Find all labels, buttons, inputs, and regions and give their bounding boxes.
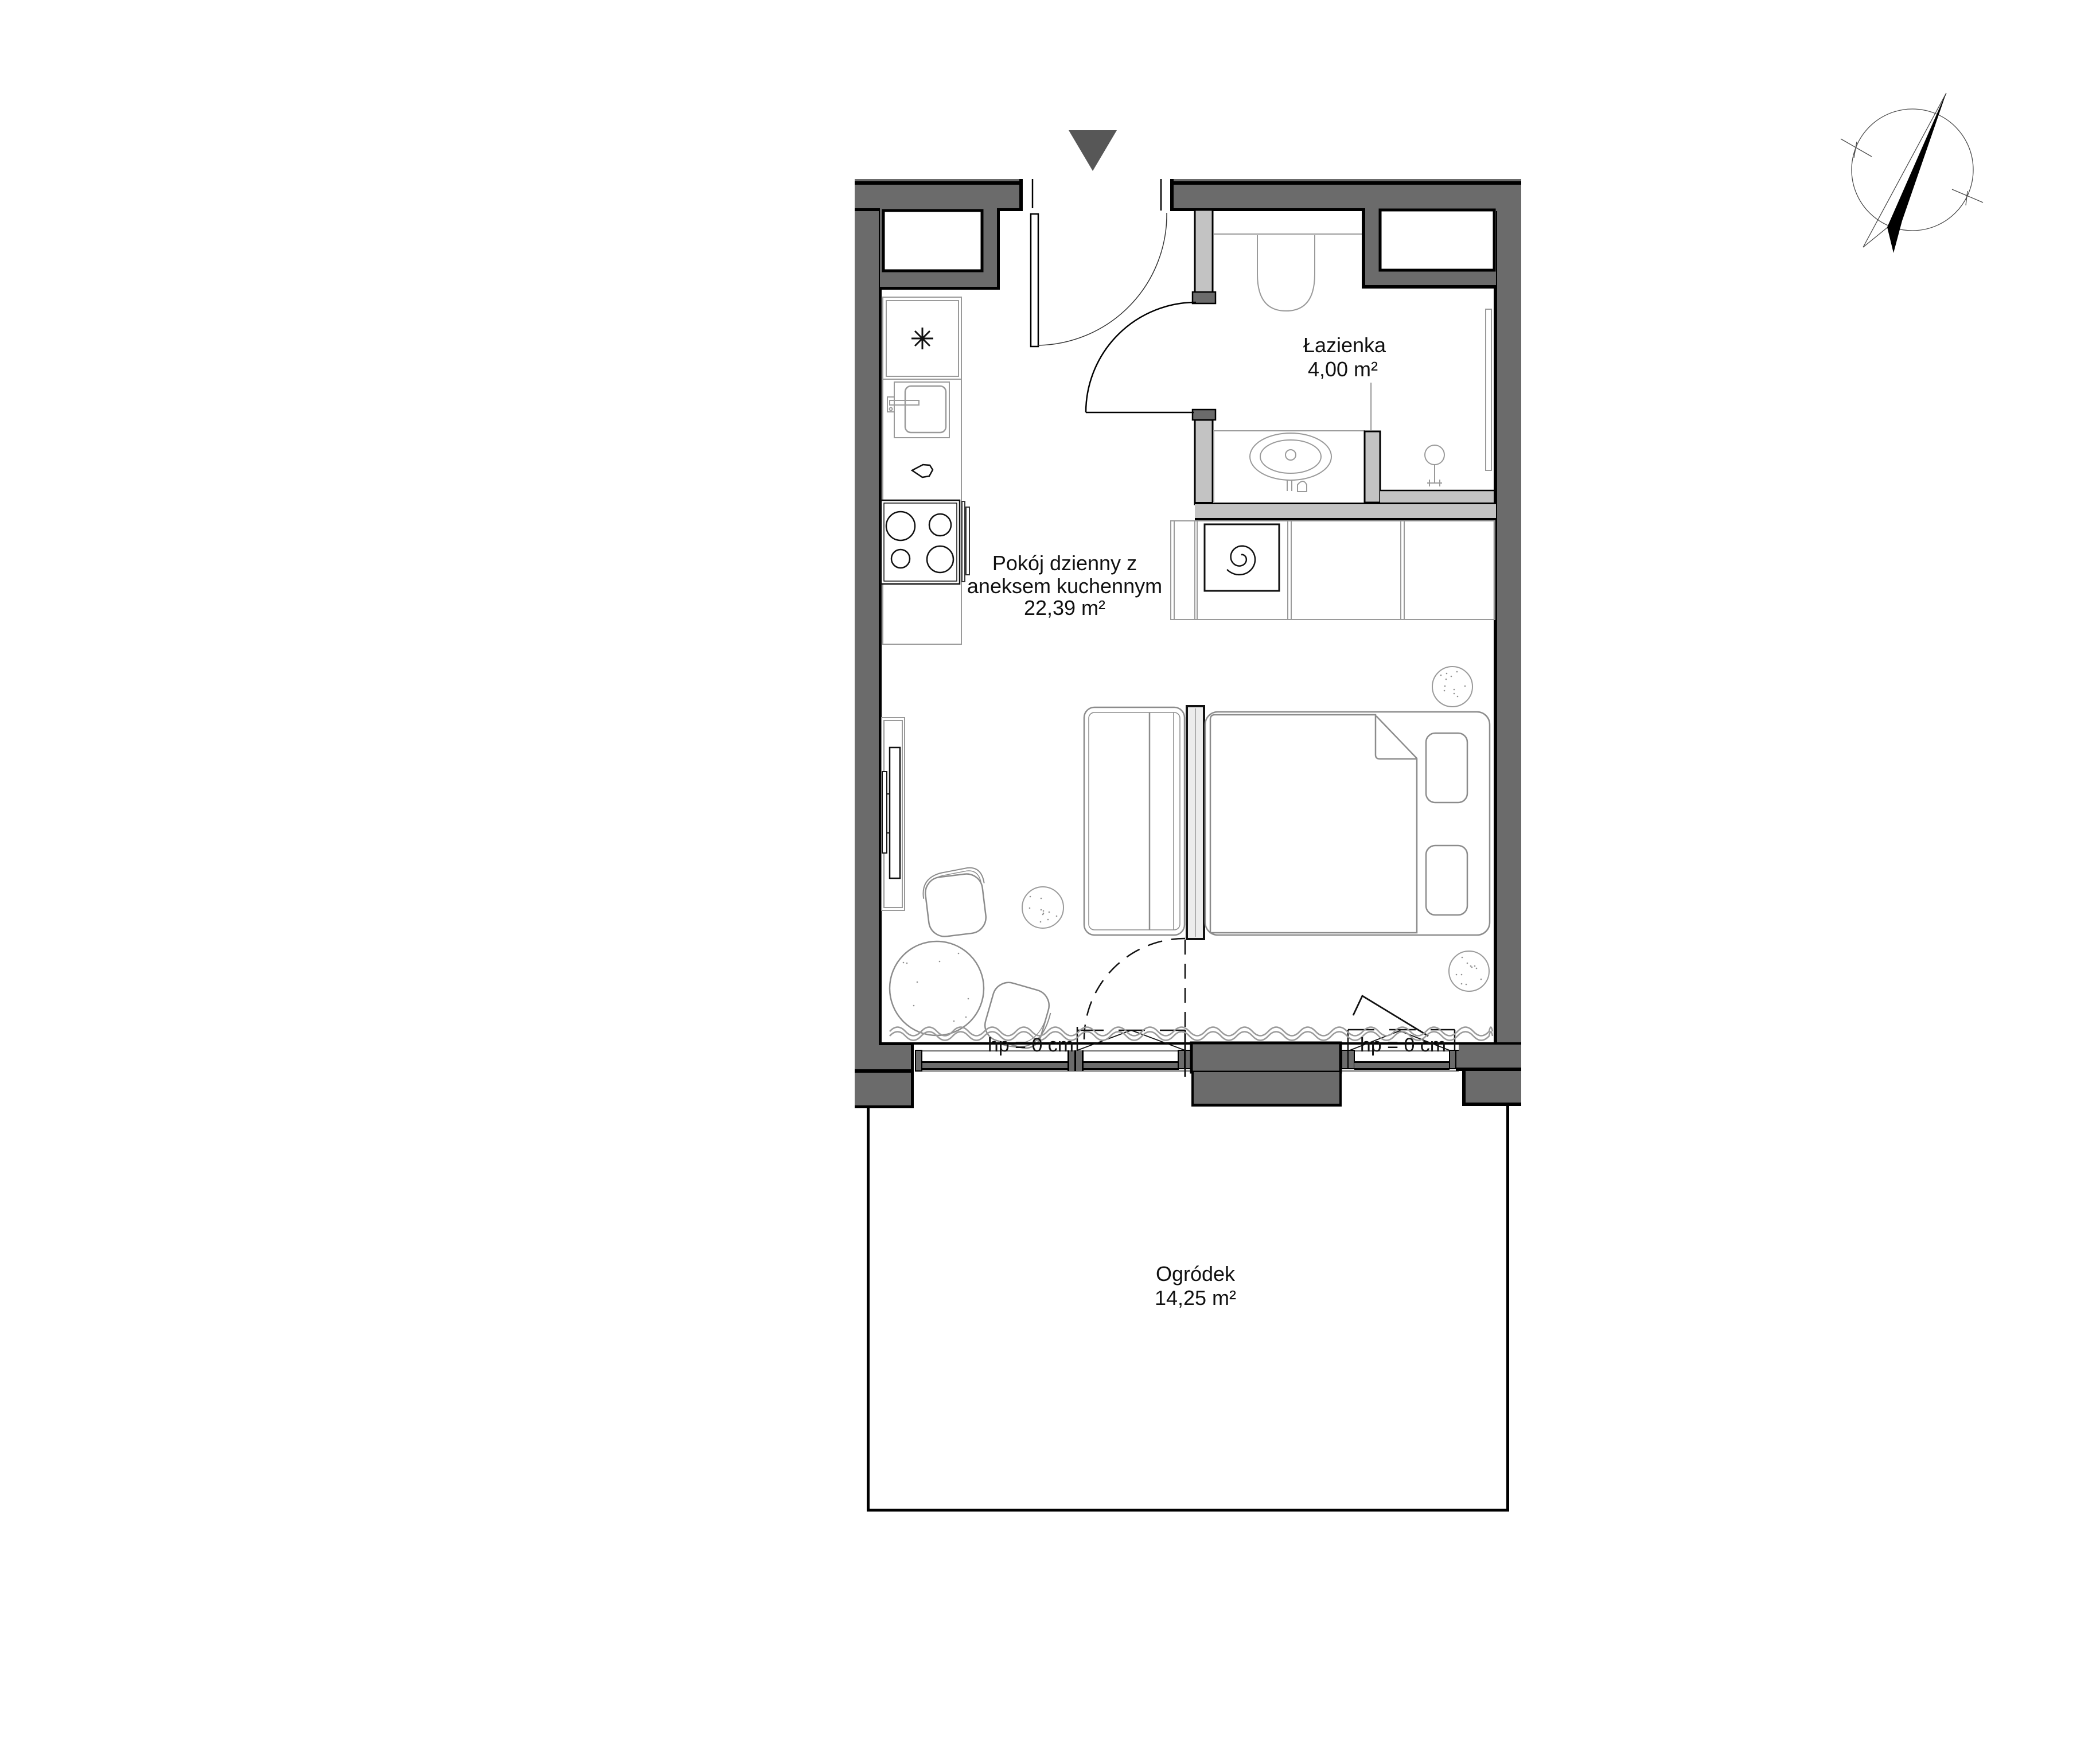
svg-text:aneksem kuchennym: aneksem kuchennym xyxy=(967,574,1162,598)
svg-text:Ogródek: Ogródek xyxy=(1156,1262,1236,1286)
svg-text:hp = 0 cm: hp = 0 cm xyxy=(1360,1034,1446,1056)
svg-text:4,00 m²: 4,00 m² xyxy=(1308,357,1378,381)
svg-text:Pokój dzienny z: Pokój dzienny z xyxy=(992,551,1137,575)
svg-text:14,25 m²: 14,25 m² xyxy=(1155,1286,1236,1310)
svg-text:Łazienka: Łazienka xyxy=(1303,333,1386,357)
svg-text:22,39 m²: 22,39 m² xyxy=(1024,596,1105,620)
svg-text:hp = 0 cm: hp = 0 cm xyxy=(988,1034,1074,1056)
